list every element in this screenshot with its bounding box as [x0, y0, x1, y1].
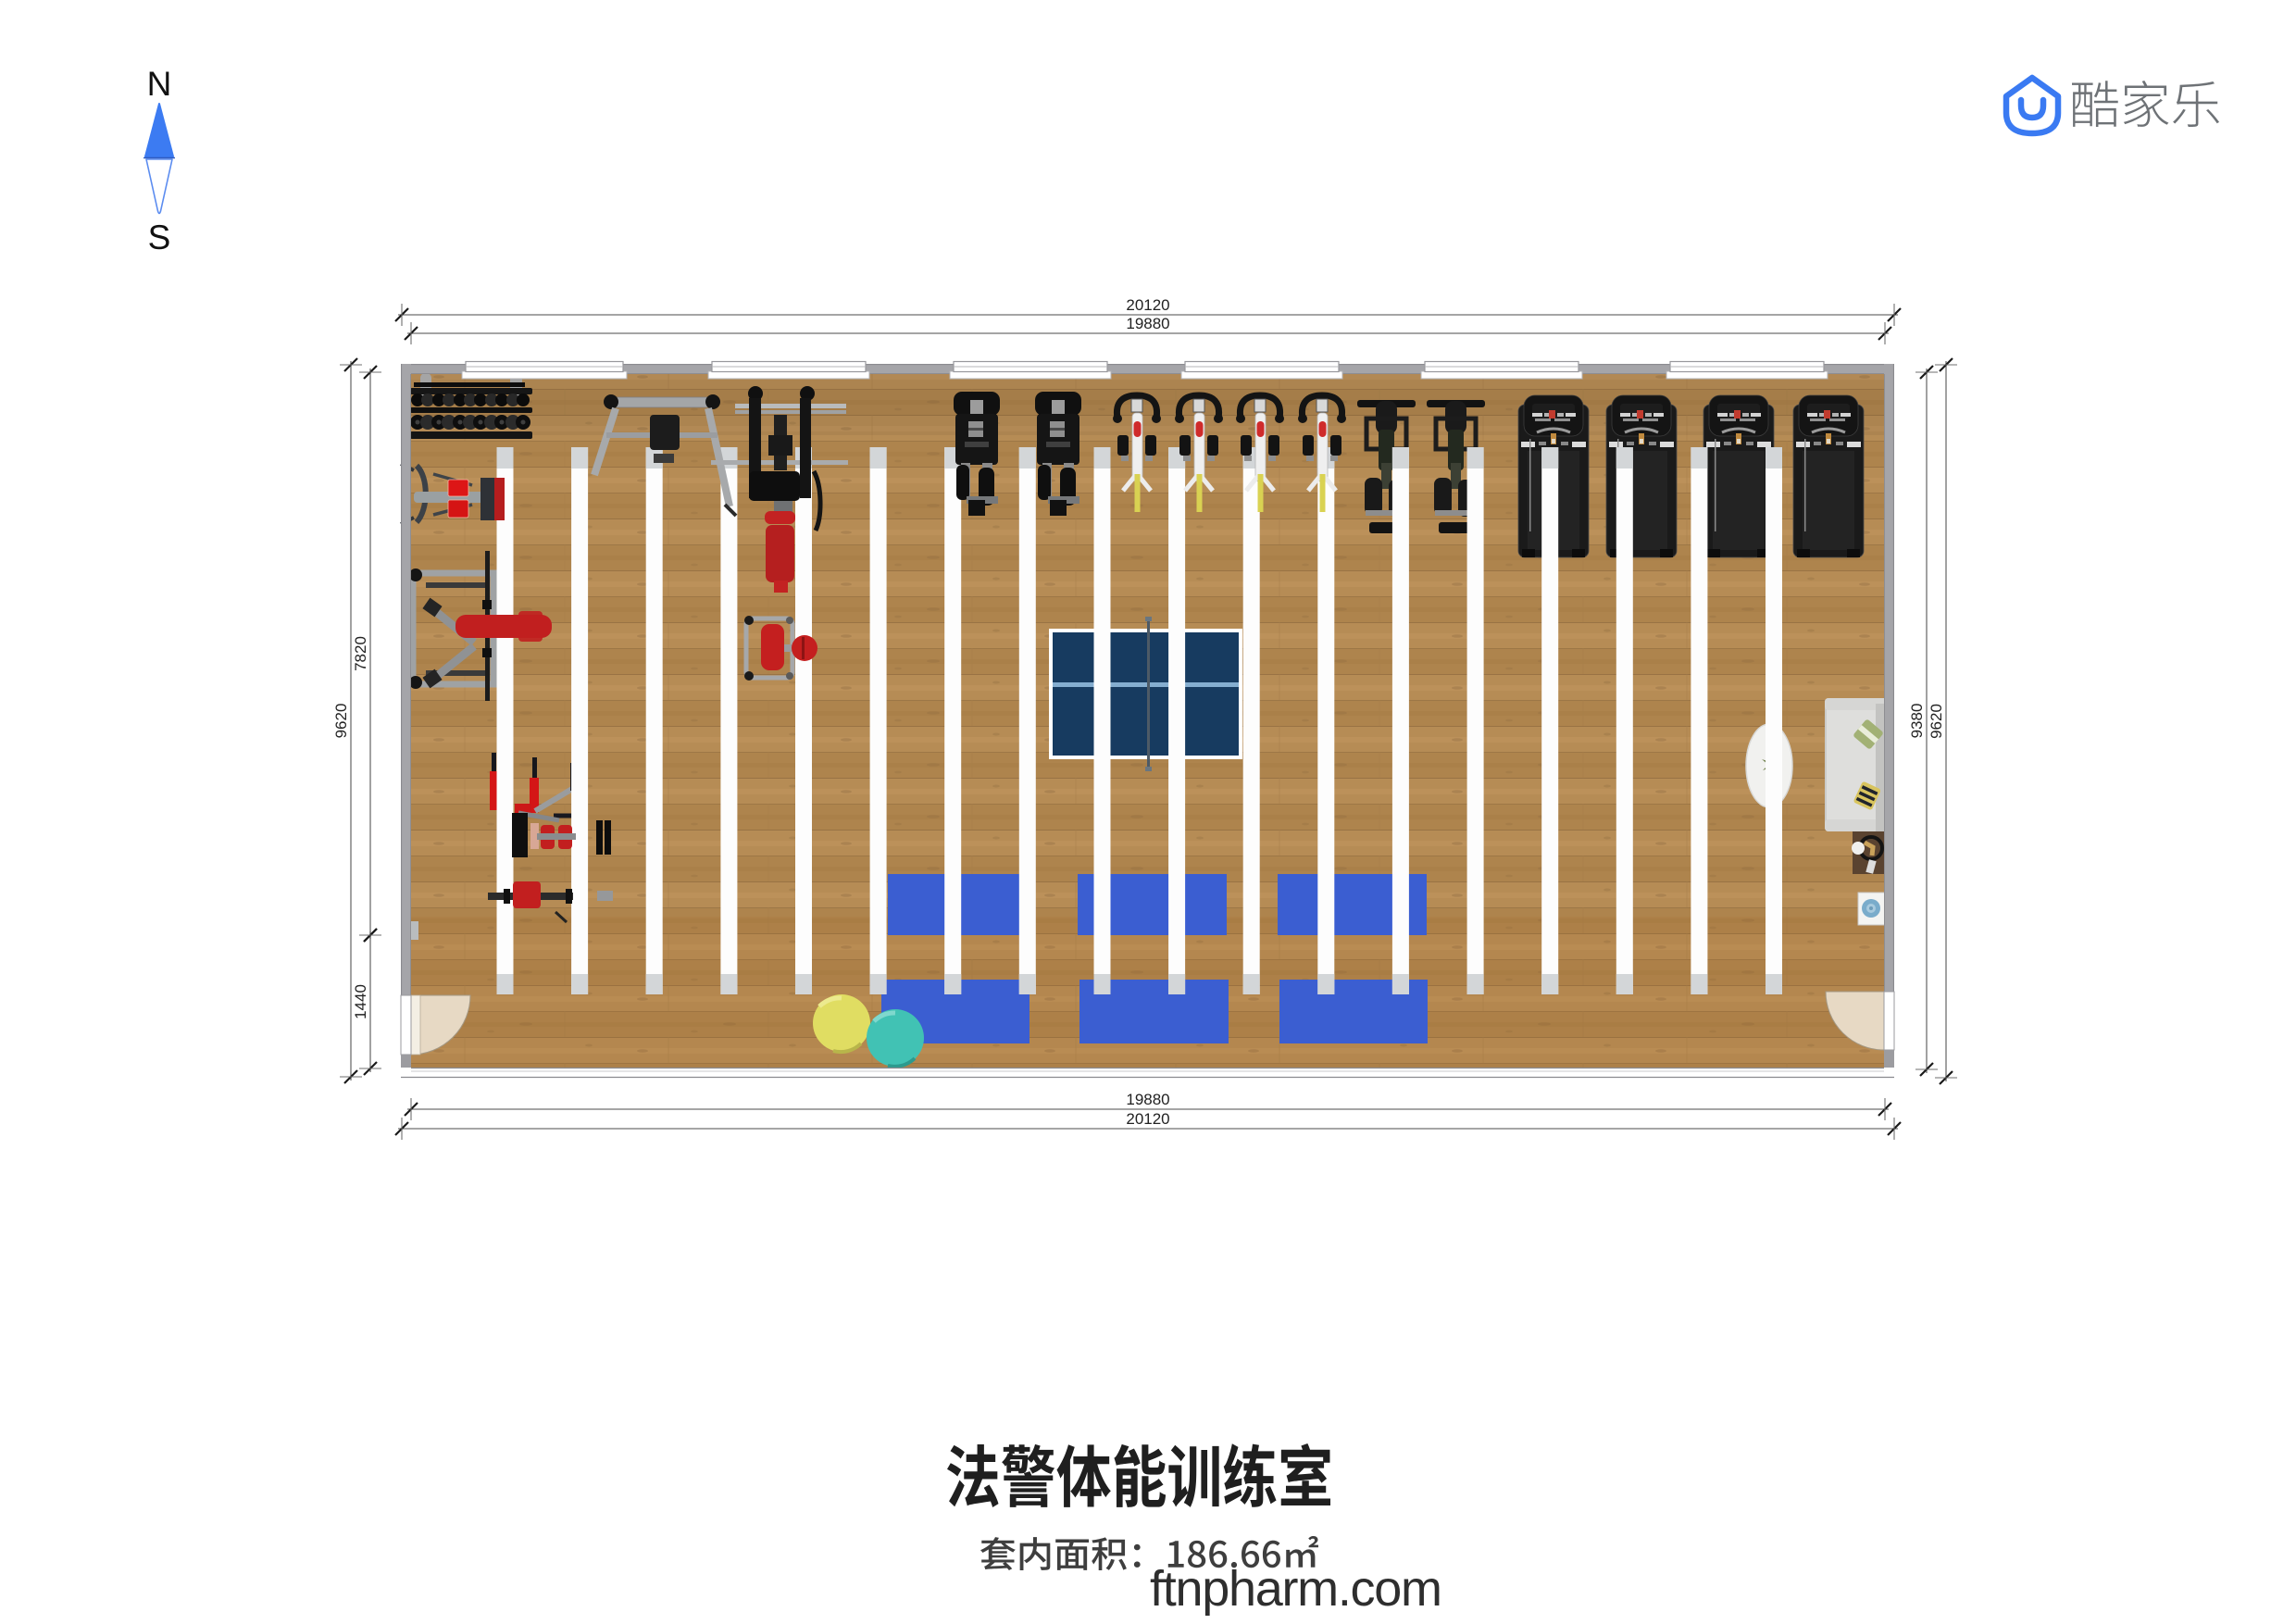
svg-text:9380: 9380 [1908, 704, 1926, 739]
svg-text:20120: 20120 [1126, 1110, 1169, 1128]
svg-text:19880: 19880 [1126, 1091, 1169, 1108]
svg-text:1440: 1440 [352, 984, 369, 1019]
svg-text:S: S [148, 219, 171, 256]
svg-text:7820: 7820 [352, 636, 369, 671]
svg-text:ftnpharm.com: ftnpharm.com [1150, 1561, 1442, 1617]
svg-text:19880: 19880 [1126, 315, 1169, 332]
svg-text:9620: 9620 [332, 704, 350, 739]
svg-text:N: N [147, 65, 172, 103]
svg-text:20120: 20120 [1126, 296, 1169, 314]
svg-text:9620: 9620 [1928, 704, 1945, 739]
